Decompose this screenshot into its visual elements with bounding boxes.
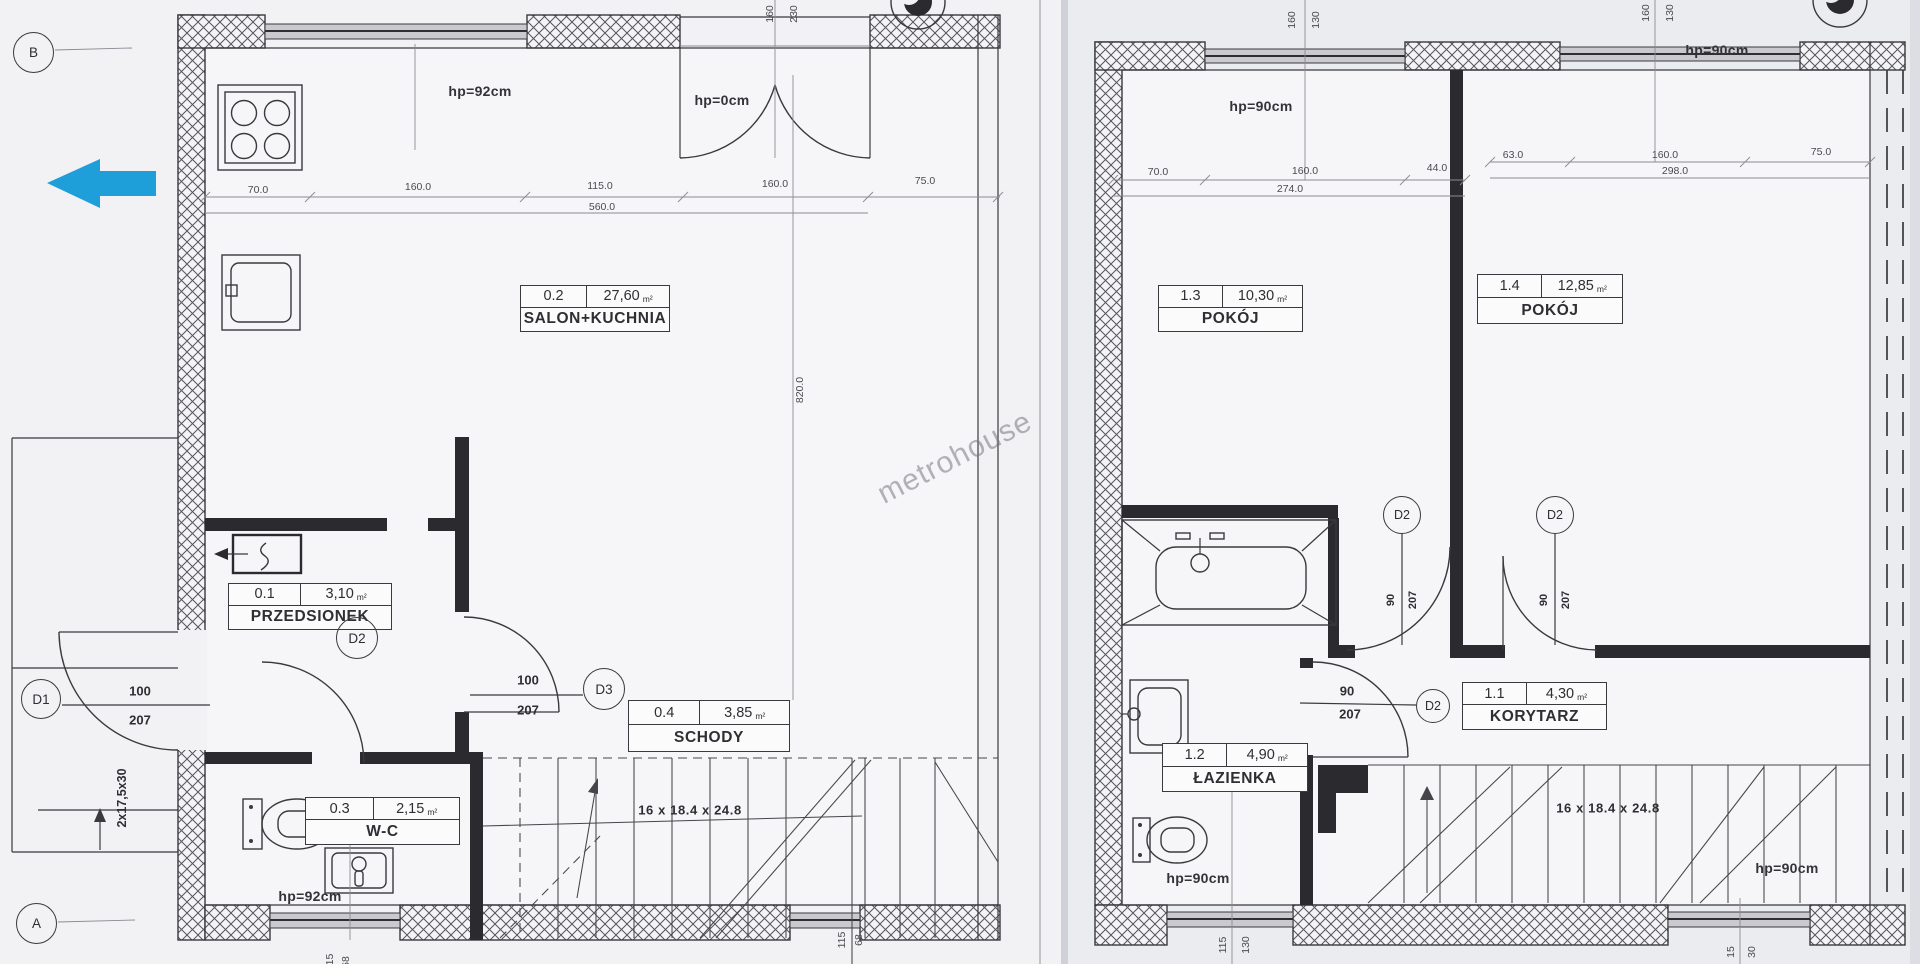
door-d3-width: 100 [517, 673, 539, 688]
room-name: ŁAZIENKA [1163, 767, 1307, 791]
exterior-steps-label: 2x17,5x30 [115, 768, 129, 827]
room-area: 2,15m² [374, 798, 459, 819]
hp-label-top-window: hp=92cm [448, 83, 511, 99]
room-label-korytarz-row1: 1.1 4,30m² [1463, 683, 1606, 705]
hp-label-entry: hp=0cm [694, 92, 749, 108]
room-label-salon: 0.2 27,60m² SALON+KUCHNIA [520, 285, 670, 332]
room-label-lazienka: 1.2 4,90m² ŁAZIENKA [1162, 743, 1308, 792]
dim-bottom2-115: 115 [324, 954, 336, 964]
room-area-value: 10,30 [1238, 288, 1274, 304]
room-id: 1.1 [1463, 683, 1527, 704]
door-b-height: 207 [1560, 591, 1572, 609]
room-name: KORYTARZ [1463, 705, 1606, 729]
room-area: 4,30m² [1527, 683, 1606, 704]
door-marker-d2-c: D2 [1416, 689, 1450, 723]
rp-dim-298: 298.0 [1662, 165, 1688, 177]
porch-outline [12, 438, 178, 852]
room-label-salon-row1: 0.2 27,60m² [521, 286, 669, 308]
hp-label-wc-window: hp=92cm [278, 888, 341, 904]
door-marker-d2-b: D2 [1536, 496, 1574, 534]
floor-plan-right [1095, 0, 1905, 964]
room-label-schody: 0.4 3,85m² SCHODY [628, 700, 790, 752]
room-label-wc-row1: 0.3 2,15m² [306, 798, 459, 820]
door-b-width: 90 [1538, 594, 1550, 606]
rp-dim-75: 75.0 [1811, 146, 1831, 158]
door-marker-d1-label: D1 [32, 692, 49, 707]
right-edge-shade [1910, 0, 1920, 964]
door-marker-d3-label: D3 [595, 682, 612, 697]
room-label-pokoj13-row1: 1.3 10,30m² [1159, 286, 1302, 308]
room-name: POKÓJ [1159, 308, 1302, 331]
room-id: 0.1 [229, 584, 301, 605]
rp-dim-bottom-115: 115 [1217, 937, 1229, 954]
room-area: 12,85m² [1542, 275, 1622, 297]
room-area-value: 4,90 [1247, 747, 1275, 763]
room-label-pokoj14-row1: 1.4 12,85m² [1478, 275, 1622, 298]
door-marker-d1: D1 [21, 679, 61, 719]
room-area-value: 4,30 [1546, 686, 1574, 702]
dim-70: 70.0 [248, 184, 268, 196]
room-id: 0.2 [521, 286, 587, 307]
room-area-unit: m² [643, 294, 653, 304]
dim-160b: 160.0 [762, 178, 788, 190]
room-id: 0.4 [629, 701, 700, 724]
section-marker-b-label: B [29, 45, 38, 60]
dim-door-h: 230 [788, 5, 800, 23]
stairs-formula-left: 16 x 18.4 x 24.8 [638, 803, 742, 818]
room-area-value: 3,10 [326, 586, 354, 602]
room-area-unit: m² [427, 807, 437, 817]
rp-win-l-h: 130 [1310, 11, 1322, 29]
door-d1-height: 207 [129, 713, 151, 728]
door-d3-height: 207 [517, 703, 539, 718]
room-area-unit: m² [755, 711, 765, 721]
room-id: 1.2 [1163, 744, 1227, 766]
room-area: 10,30m² [1223, 286, 1302, 307]
rp-dim-bottom-130: 130 [1240, 936, 1252, 954]
room-label-lazienka-row1: 1.2 4,90m² [1163, 744, 1307, 767]
door-d1 [59, 632, 178, 750]
rp-dim-bottom-30: 30 [1746, 946, 1758, 958]
room-area-unit: m² [1597, 284, 1607, 294]
room-area-value: 27,60 [603, 288, 639, 304]
dim-depth: 820.0 [794, 377, 806, 403]
door-marker-d2-a: D2 [1383, 496, 1421, 534]
hp-label-rp-top-left: hp=90cm [1229, 98, 1292, 114]
dim-door-w: 160 [764, 5, 776, 23]
door-marker-d3: D3 [583, 668, 625, 710]
rp-dim-70: 70.0 [1148, 166, 1168, 178]
room-area-unit: m² [357, 592, 367, 602]
room-label-schody-row1: 0.4 3,85m² [629, 701, 789, 725]
dim-bottom-115: 115 [836, 932, 848, 949]
room-name: SALON+KUCHNIA [521, 308, 669, 331]
section-marker-b: B [13, 32, 54, 73]
room-area-unit: m² [1278, 753, 1288, 763]
room-label-wc: 0.3 2,15m² W-C [305, 797, 460, 845]
room-area-value: 12,85 [1558, 278, 1594, 294]
hp-label-rp-top-right: hp=90cm [1685, 42, 1748, 58]
room-area-value: 3,85 [724, 705, 752, 721]
room-name: W-C [306, 820, 459, 844]
room-label-korytarz: 1.1 4,30m² KORYTARZ [1462, 682, 1607, 730]
room-area-unit: m² [1277, 294, 1287, 304]
door-c-width: 90 [1340, 684, 1354, 699]
rp-dim-160l: 160.0 [1292, 165, 1318, 177]
rp-dim-274: 274.0 [1277, 183, 1303, 195]
door-d1-width: 100 [129, 684, 151, 699]
room-area-unit: m² [1577, 692, 1587, 702]
room-id: 1.3 [1159, 286, 1223, 307]
floorplan-page: .hw{fill:url(#hatch);stroke:#3a3a3e;stro… [0, 0, 1920, 964]
room-label-pokoj-14: 1.4 12,85m² POKÓJ [1477, 274, 1623, 324]
section-marker-a-label: A [32, 916, 41, 931]
rp-dim-160r: 160.0 [1652, 149, 1678, 161]
door-marker-label: D2 [1547, 508, 1563, 522]
room-name: POKÓJ [1478, 298, 1622, 323]
rp-win-r-w: 160 [1640, 4, 1652, 22]
floorplan-drawing: .hw{fill:url(#hatch);stroke:#3a3a3e;stro… [0, 0, 1920, 964]
direction-arrow-icon [47, 159, 156, 208]
dim-115: 115.0 [587, 180, 613, 192]
dim-bottom2-68: 68 [340, 956, 352, 964]
rp-dim-bottom-15: 15 [1725, 946, 1737, 958]
door-marker-label: D2 [1425, 699, 1441, 713]
dim-75: 75.0 [915, 175, 935, 187]
room-id: 1.4 [1478, 275, 1542, 297]
rp-dim-44: 44.0 [1427, 162, 1447, 174]
door-a-height: 207 [1407, 591, 1419, 609]
hp-label-rp-bottom-right: hp=90cm [1755, 860, 1818, 876]
door-a-width: 90 [1385, 594, 1397, 606]
door-c-height: 207 [1339, 707, 1361, 722]
scan-seam [1061, 0, 1068, 964]
door-marker-d2: D2 [336, 617, 378, 659]
room-area: 27,60m² [587, 286, 669, 307]
rp-dim-63: 63.0 [1503, 149, 1523, 161]
room-area: 3,10m² [301, 584, 391, 605]
room-label-przedsionek-row1: 0.1 3,10m² [229, 584, 391, 606]
section-marker-a: A [16, 903, 57, 944]
door-marker-label: D2 [1394, 508, 1410, 522]
stairs-formula-right: 16 x 18.4 x 24.8 [1556, 801, 1660, 816]
room-id: 0.3 [306, 798, 374, 819]
room-label-pokoj-13: 1.3 10,30m² POKÓJ [1158, 285, 1303, 332]
room-area: 3,85m² [700, 701, 789, 724]
hp-label-rp-bottom-left: hp=90cm [1166, 870, 1229, 886]
dim-560-total: 560.0 [589, 201, 615, 213]
dim-bottom-68: 68 [853, 934, 865, 946]
room-area: 4,90m² [1227, 744, 1307, 766]
rp-win-r-h: 130 [1664, 4, 1676, 22]
room-area-value: 2,15 [396, 801, 424, 817]
dim-160: 160.0 [405, 181, 431, 193]
door-marker-d2-label: D2 [348, 631, 365, 646]
room-name: SCHODY [629, 725, 789, 751]
rp-win-l-w: 160 [1286, 11, 1298, 29]
